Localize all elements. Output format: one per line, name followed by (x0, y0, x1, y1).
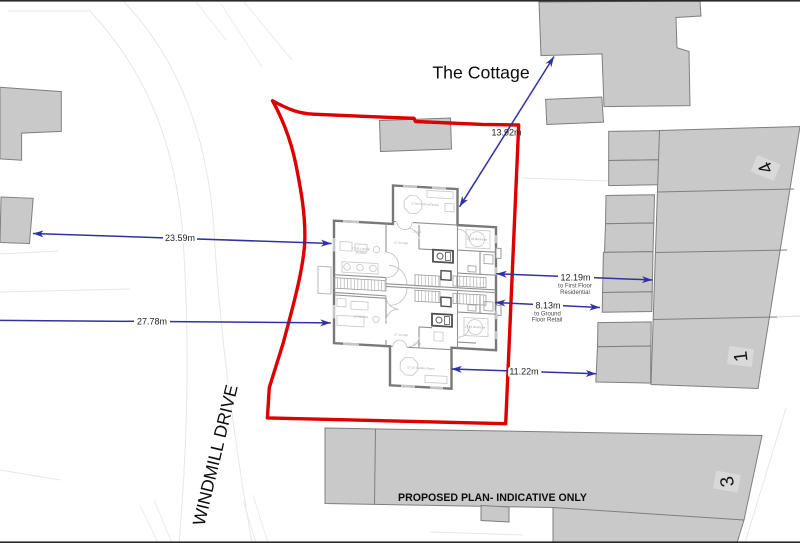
svg-text:11.22m: 11.22m (509, 367, 538, 377)
svg-text:27.03: 27.03 (413, 230, 421, 234)
svg-text:27.78m: 27.78m (137, 317, 167, 327)
svg-text:8.13m: 8.13m (535, 301, 560, 311)
svg-text:27.12 Hall: 27.12 Hall (394, 333, 408, 338)
svg-text:12.19m: 12.19m (560, 273, 590, 283)
svg-text:27.08 Bed: 27.08 Bed (354, 314, 368, 319)
svg-text:27.02 Hall: 27.02 Hall (394, 241, 408, 246)
svg-text:to First Floor: to First Floor (558, 284, 592, 290)
svg-text:14.2sqm: 14.2sqm (355, 250, 367, 255)
svg-text:PROPOSED PLAN- INDICATIVE ONLY: PROPOSED PLAN- INDICATIVE ONLY (398, 492, 587, 504)
svg-text:The Cottage: The Cottage (432, 62, 530, 82)
svg-text:23.59m: 23.59m (165, 233, 195, 243)
svg-text:13.92m: 13.92m (491, 128, 521, 138)
svg-text:27.13: 27.13 (413, 342, 421, 346)
svg-text:Residential: Residential (560, 290, 590, 296)
svg-text:Floor Retail: Floor Retail (532, 318, 563, 324)
